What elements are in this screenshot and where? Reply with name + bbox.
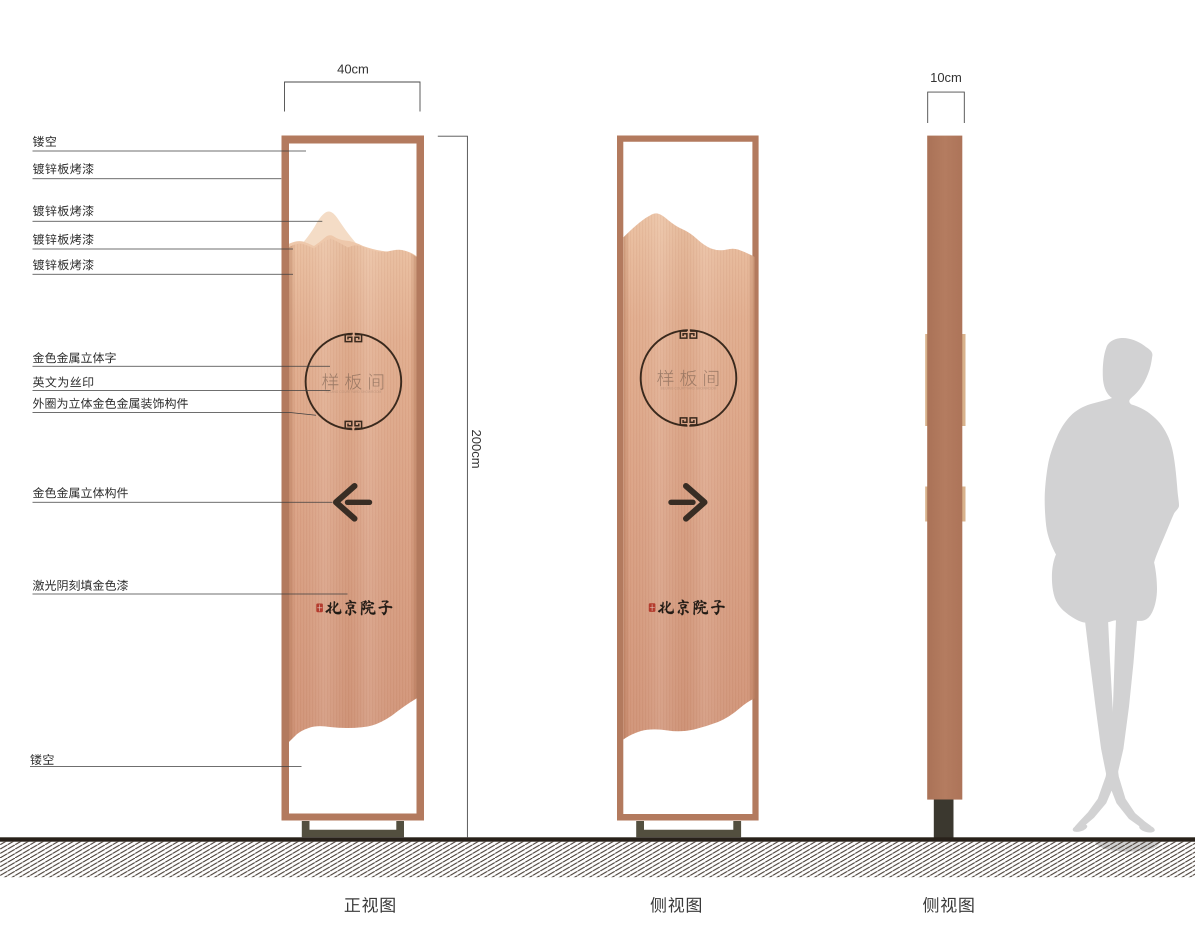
svg-text:200cm: 200cm (469, 430, 484, 469)
svg-text:BEIJING COURTYARD SHOWROOM: BEIJING COURTYARD SHOWROOM (326, 390, 382, 394)
svg-text:BEIJING COURTYARD SHOWROOM: BEIJING COURTYARD SHOWROOM (661, 386, 717, 390)
svg-text:40cm: 40cm (337, 62, 369, 77)
svg-text:10cm: 10cm (930, 70, 962, 85)
